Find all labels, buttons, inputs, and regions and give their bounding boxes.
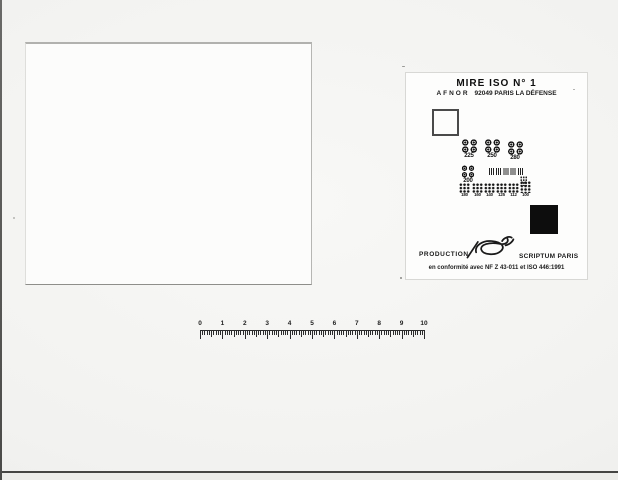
ruler-tick [422, 331, 423, 335]
ruler-tick [222, 331, 223, 339]
ruler-tick [368, 331, 369, 337]
dot-pattern [496, 183, 507, 193]
fine-pattern-strip [489, 168, 525, 175]
ruler-tick [260, 331, 261, 335]
ruler-tick [209, 331, 210, 335]
ruler-tick [316, 331, 317, 335]
ruler-tick [328, 331, 329, 335]
scan-edge-left [0, 0, 2, 480]
ruler-tick [229, 331, 230, 335]
conformity-note: en conformité avec NF Z 43-011 et ISO 44… [406, 265, 587, 271]
scanned-page: MIRE ISO N° 1 AFNOR92049 PARIS LA DÉFENS… [0, 0, 618, 480]
scan-speck [13, 217, 15, 219]
ruler-tick [231, 331, 232, 335]
ruler-number: 4 [288, 320, 292, 327]
dot-pattern [461, 139, 478, 153]
ruler-tick [321, 331, 322, 335]
ruler-tick [361, 331, 362, 335]
dot-pattern [461, 165, 475, 178]
ruler-tick [216, 331, 217, 335]
ruler-tick [370, 331, 371, 335]
ruler-tick [265, 331, 266, 335]
ruler-tick [393, 331, 394, 335]
ruler-tick [287, 331, 288, 335]
ruler-tick [325, 331, 326, 335]
ruler-tick [372, 331, 373, 335]
ruler-tick [420, 331, 421, 335]
ruler-tick [377, 331, 378, 335]
ruler-tick [384, 331, 385, 335]
ruler-tick [357, 331, 358, 339]
ruler-tick [359, 331, 360, 335]
pattern-label: 225 [459, 153, 479, 159]
ruler-tick [310, 331, 311, 335]
pattern-label: 112 [509, 193, 518, 197]
ruler-number: 3 [265, 320, 269, 327]
ruler-tick [305, 331, 306, 335]
ruler-tick [213, 331, 214, 335]
pattern-label: 160 [473, 193, 482, 197]
dot-pattern-cluster-200: 200 [459, 165, 477, 184]
ruler-tick [254, 331, 255, 335]
scan-speck [573, 89, 575, 90]
address-label: 92049 PARIS LA DÉFENSE [475, 90, 557, 97]
ruler-numbers: 012345678910 [200, 320, 426, 328]
ruler-tick [211, 331, 212, 337]
ruler-tick [364, 331, 365, 335]
ruler-tick [227, 331, 228, 335]
dot-pattern [472, 183, 483, 193]
ruler-tick [399, 331, 400, 335]
ruler-tick [334, 331, 335, 339]
scan-bottom-strip [0, 473, 618, 480]
pattern-label: 100 [521, 193, 530, 197]
ruler-tick [274, 331, 275, 335]
ruler-tick [386, 331, 387, 335]
ruler-tick [415, 331, 416, 335]
ruler-tick [272, 331, 273, 335]
ruler-tick [341, 331, 342, 335]
ruler-tick [249, 331, 250, 335]
chart-subtitle: AFNOR92049 PARIS LA DÉFENSE [406, 90, 587, 97]
pattern-label: 125 [497, 193, 506, 197]
dot-pattern-cluster-280: 280 [505, 141, 525, 161]
ruler-tick [413, 331, 414, 337]
scan-speck [400, 277, 402, 279]
ruler-tick [276, 331, 277, 335]
ruler-tick [395, 331, 396, 335]
ruler-number: 2 [243, 320, 247, 327]
ruler-tick [200, 331, 201, 339]
ruler-tick [408, 331, 409, 335]
dot-pattern [484, 183, 495, 193]
ruler-tick [404, 331, 405, 335]
calibration-white-square [432, 109, 459, 136]
ruler-tick [236, 331, 237, 335]
ruler-tick [379, 331, 380, 339]
ruler-tick [319, 331, 320, 335]
ruler-tick [299, 331, 300, 335]
ruler-tick [247, 331, 248, 335]
pattern-label: 280 [505, 155, 525, 161]
ruler-ticks [200, 330, 425, 341]
ruler-tick [366, 331, 367, 335]
blank-document-sheet [25, 42, 312, 285]
scan-edge-bottom [0, 471, 618, 473]
pattern-label: 140 [485, 193, 494, 197]
ruler-tick [292, 331, 293, 335]
producer-label: SCRIPTUM PARIS [519, 253, 578, 260]
ruler-tick [285, 331, 286, 335]
iso-test-chart: MIRE ISO N° 1 AFNOR92049 PARIS LA DÉFENS… [405, 72, 588, 280]
ruler-tick [263, 331, 264, 335]
ruler-number: 10 [420, 320, 427, 327]
ruler-tick [330, 331, 331, 335]
ruler-tick [308, 331, 309, 335]
ruler-tick [343, 331, 344, 335]
dot-pattern-cluster-180: 180 [458, 183, 471, 199]
ruler-number: 6 [333, 320, 337, 327]
chart-title: MIRE ISO N° 1 [406, 78, 587, 89]
ruler-number: 1 [221, 320, 225, 327]
ruler-tick [303, 331, 304, 335]
ruler-tick [381, 331, 382, 335]
ruler-tick [240, 331, 241, 335]
scan-speck [402, 66, 405, 67]
ruler-tick [243, 331, 244, 335]
ruler-tick [312, 331, 313, 339]
dot-pattern-cluster-250: 250 [482, 139, 502, 159]
ruler-tick [225, 331, 226, 335]
ruler-tick [337, 331, 338, 335]
scriptum-logo-icon [464, 233, 516, 263]
ruler-tick [204, 331, 205, 335]
ruler-tick [352, 331, 353, 335]
dot-pattern-cluster-225: 225 [459, 139, 479, 159]
ruler-tick [388, 331, 389, 335]
ruler-tick [234, 331, 235, 337]
ruler-tick [346, 331, 347, 337]
ruler-tick [314, 331, 315, 335]
dot-pattern [520, 181, 531, 193]
dot-pattern [508, 183, 519, 193]
dot-pattern [484, 139, 501, 153]
ruler-tick [269, 331, 270, 335]
ruler-tick [202, 331, 203, 335]
ruler-number: 8 [377, 320, 381, 327]
ruler-tick [294, 331, 295, 335]
ruler-tick [397, 331, 398, 335]
ruler-tick [339, 331, 340, 335]
ruler-tick [281, 331, 282, 335]
ruler-tick [301, 331, 302, 337]
pattern-label: 250 [482, 153, 502, 159]
ruler-tick [355, 331, 356, 335]
ruler-tick [220, 331, 221, 335]
measurement-ruler: 012345678910 [197, 320, 429, 344]
afnor-label: AFNOR [436, 90, 469, 97]
ruler-tick [390, 331, 391, 337]
ruler-tick [296, 331, 297, 335]
ruler-tick [417, 331, 418, 335]
ruler-tick [411, 331, 412, 335]
ruler-tick [258, 331, 259, 335]
ruler-tick [278, 331, 279, 337]
dot-pattern-cluster-100: 100 [519, 181, 532, 199]
ruler-tick [350, 331, 351, 335]
ruler-tick [283, 331, 284, 335]
ruler-tick [218, 331, 219, 335]
ruler-tick [290, 331, 291, 339]
ruler-number: 9 [400, 320, 404, 327]
production-label: PRODUCTION [419, 251, 469, 258]
ruler-tick [323, 331, 324, 337]
dot-pattern [507, 141, 524, 155]
ruler-tick [348, 331, 349, 335]
ruler-tick [402, 331, 403, 339]
ruler-tick [207, 331, 208, 335]
pattern-label: 180 [460, 193, 469, 197]
ruler-tick [375, 331, 376, 335]
ruler-tick [256, 331, 257, 337]
ruler-tick [332, 331, 333, 335]
ruler-tick [245, 331, 246, 339]
ruler-tick [252, 331, 253, 335]
ruler-tick [267, 331, 268, 339]
dot-pattern [459, 183, 470, 193]
ruler-tick [424, 331, 425, 339]
calibration-black-square [530, 205, 558, 234]
ruler-tick [238, 331, 239, 335]
ruler-tick [406, 331, 407, 335]
ruler-number: 5 [310, 320, 314, 327]
ruler-number: 7 [355, 320, 359, 327]
ruler-number: 0 [198, 320, 202, 327]
